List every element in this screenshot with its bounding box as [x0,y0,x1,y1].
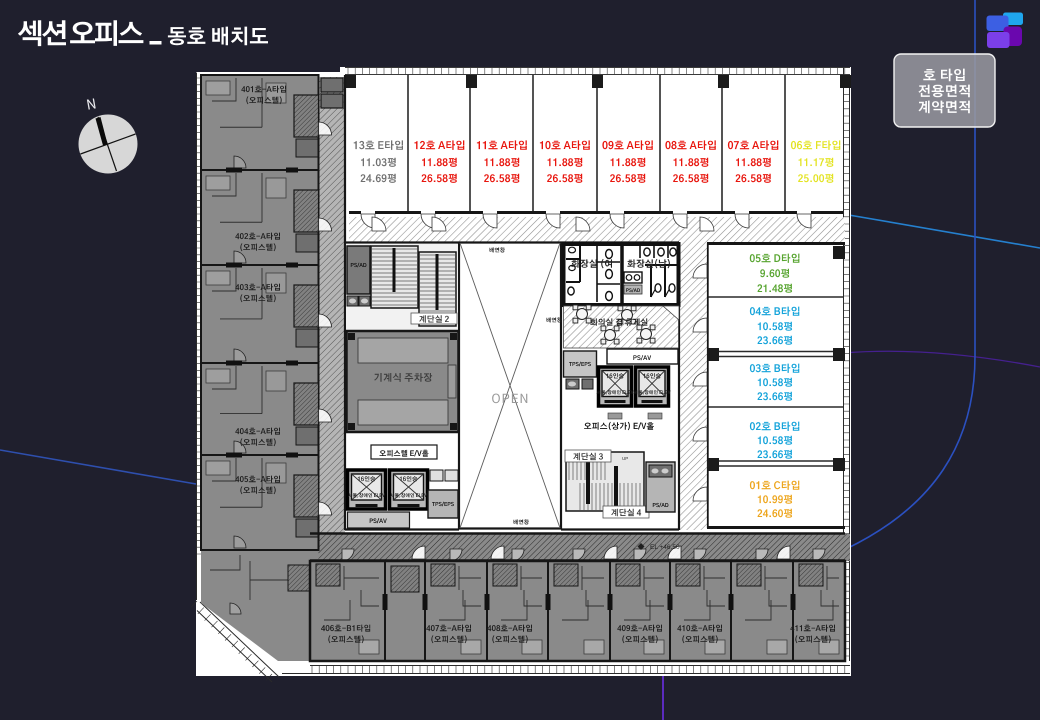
svg-text:EL +46.50: EL +46.50 [650,544,680,551]
svg-text:UP: UP [622,456,628,461]
